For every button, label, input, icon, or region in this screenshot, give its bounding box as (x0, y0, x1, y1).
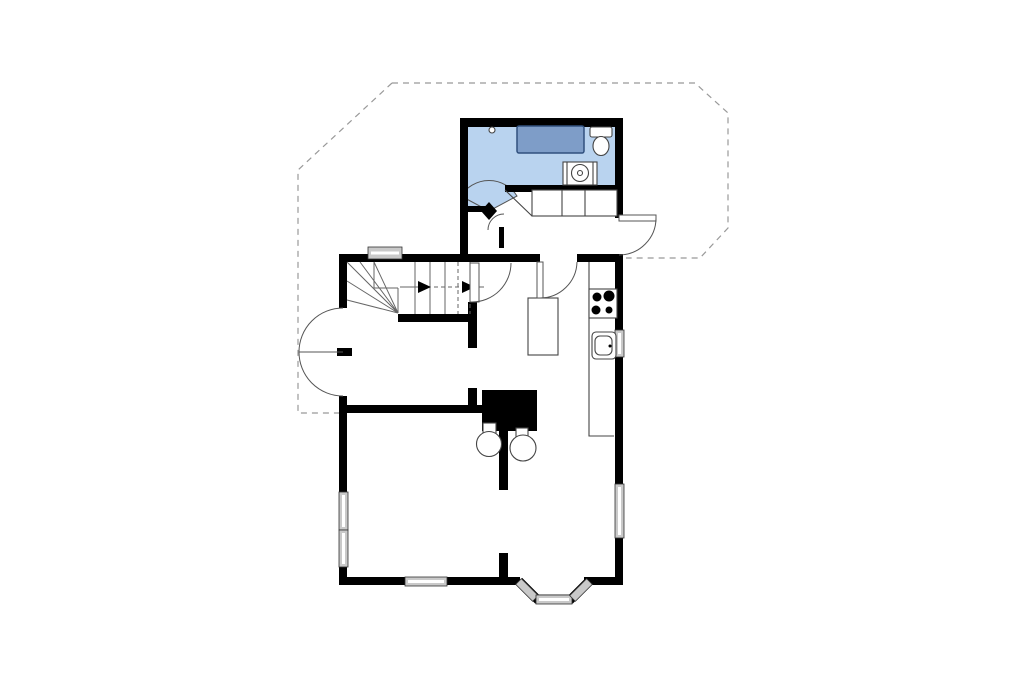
burner-3 (592, 306, 601, 315)
entrance-door-swing (619, 218, 656, 255)
wall-interior-horizontal (339, 405, 484, 413)
burner-1 (593, 293, 602, 302)
wall-hall-stub (499, 227, 504, 248)
entrance-door-leaf (619, 215, 656, 221)
hall-to-kitchen-door-leaf (537, 262, 543, 298)
staircase (347, 262, 484, 314)
bay-window-right (570, 579, 593, 602)
floor-drain (489, 127, 495, 133)
hall-ceiling-slope-line (505, 190, 532, 216)
wall-bottom-stub (499, 553, 508, 585)
floor-plan-drawing (0, 0, 1024, 682)
wall-stair-bottom (398, 314, 477, 322)
hall-to-kitchen-door-swing (540, 262, 577, 298)
sink-faucet (609, 345, 612, 348)
bay-window-left (516, 579, 539, 602)
floor-plan-canvas (0, 0, 1024, 682)
wall-annex-left (460, 118, 468, 262)
toilet-bowl (593, 137, 609, 156)
stair-up-arrow-1 (418, 281, 431, 293)
washing-machine-center (578, 171, 583, 176)
burner-4 (606, 307, 613, 314)
wall-left-upper (339, 254, 347, 308)
toilet-tank (590, 127, 612, 137)
wood-stove-2 (510, 435, 536, 461)
island-table (528, 298, 558, 355)
wardrobe (532, 190, 617, 216)
wall-interior-vertical-a (468, 302, 477, 348)
wood-stove-1 (477, 432, 502, 457)
bathtub (517, 126, 584, 153)
burner-2 (604, 291, 615, 302)
stair-room-door-leaf (470, 263, 479, 302)
